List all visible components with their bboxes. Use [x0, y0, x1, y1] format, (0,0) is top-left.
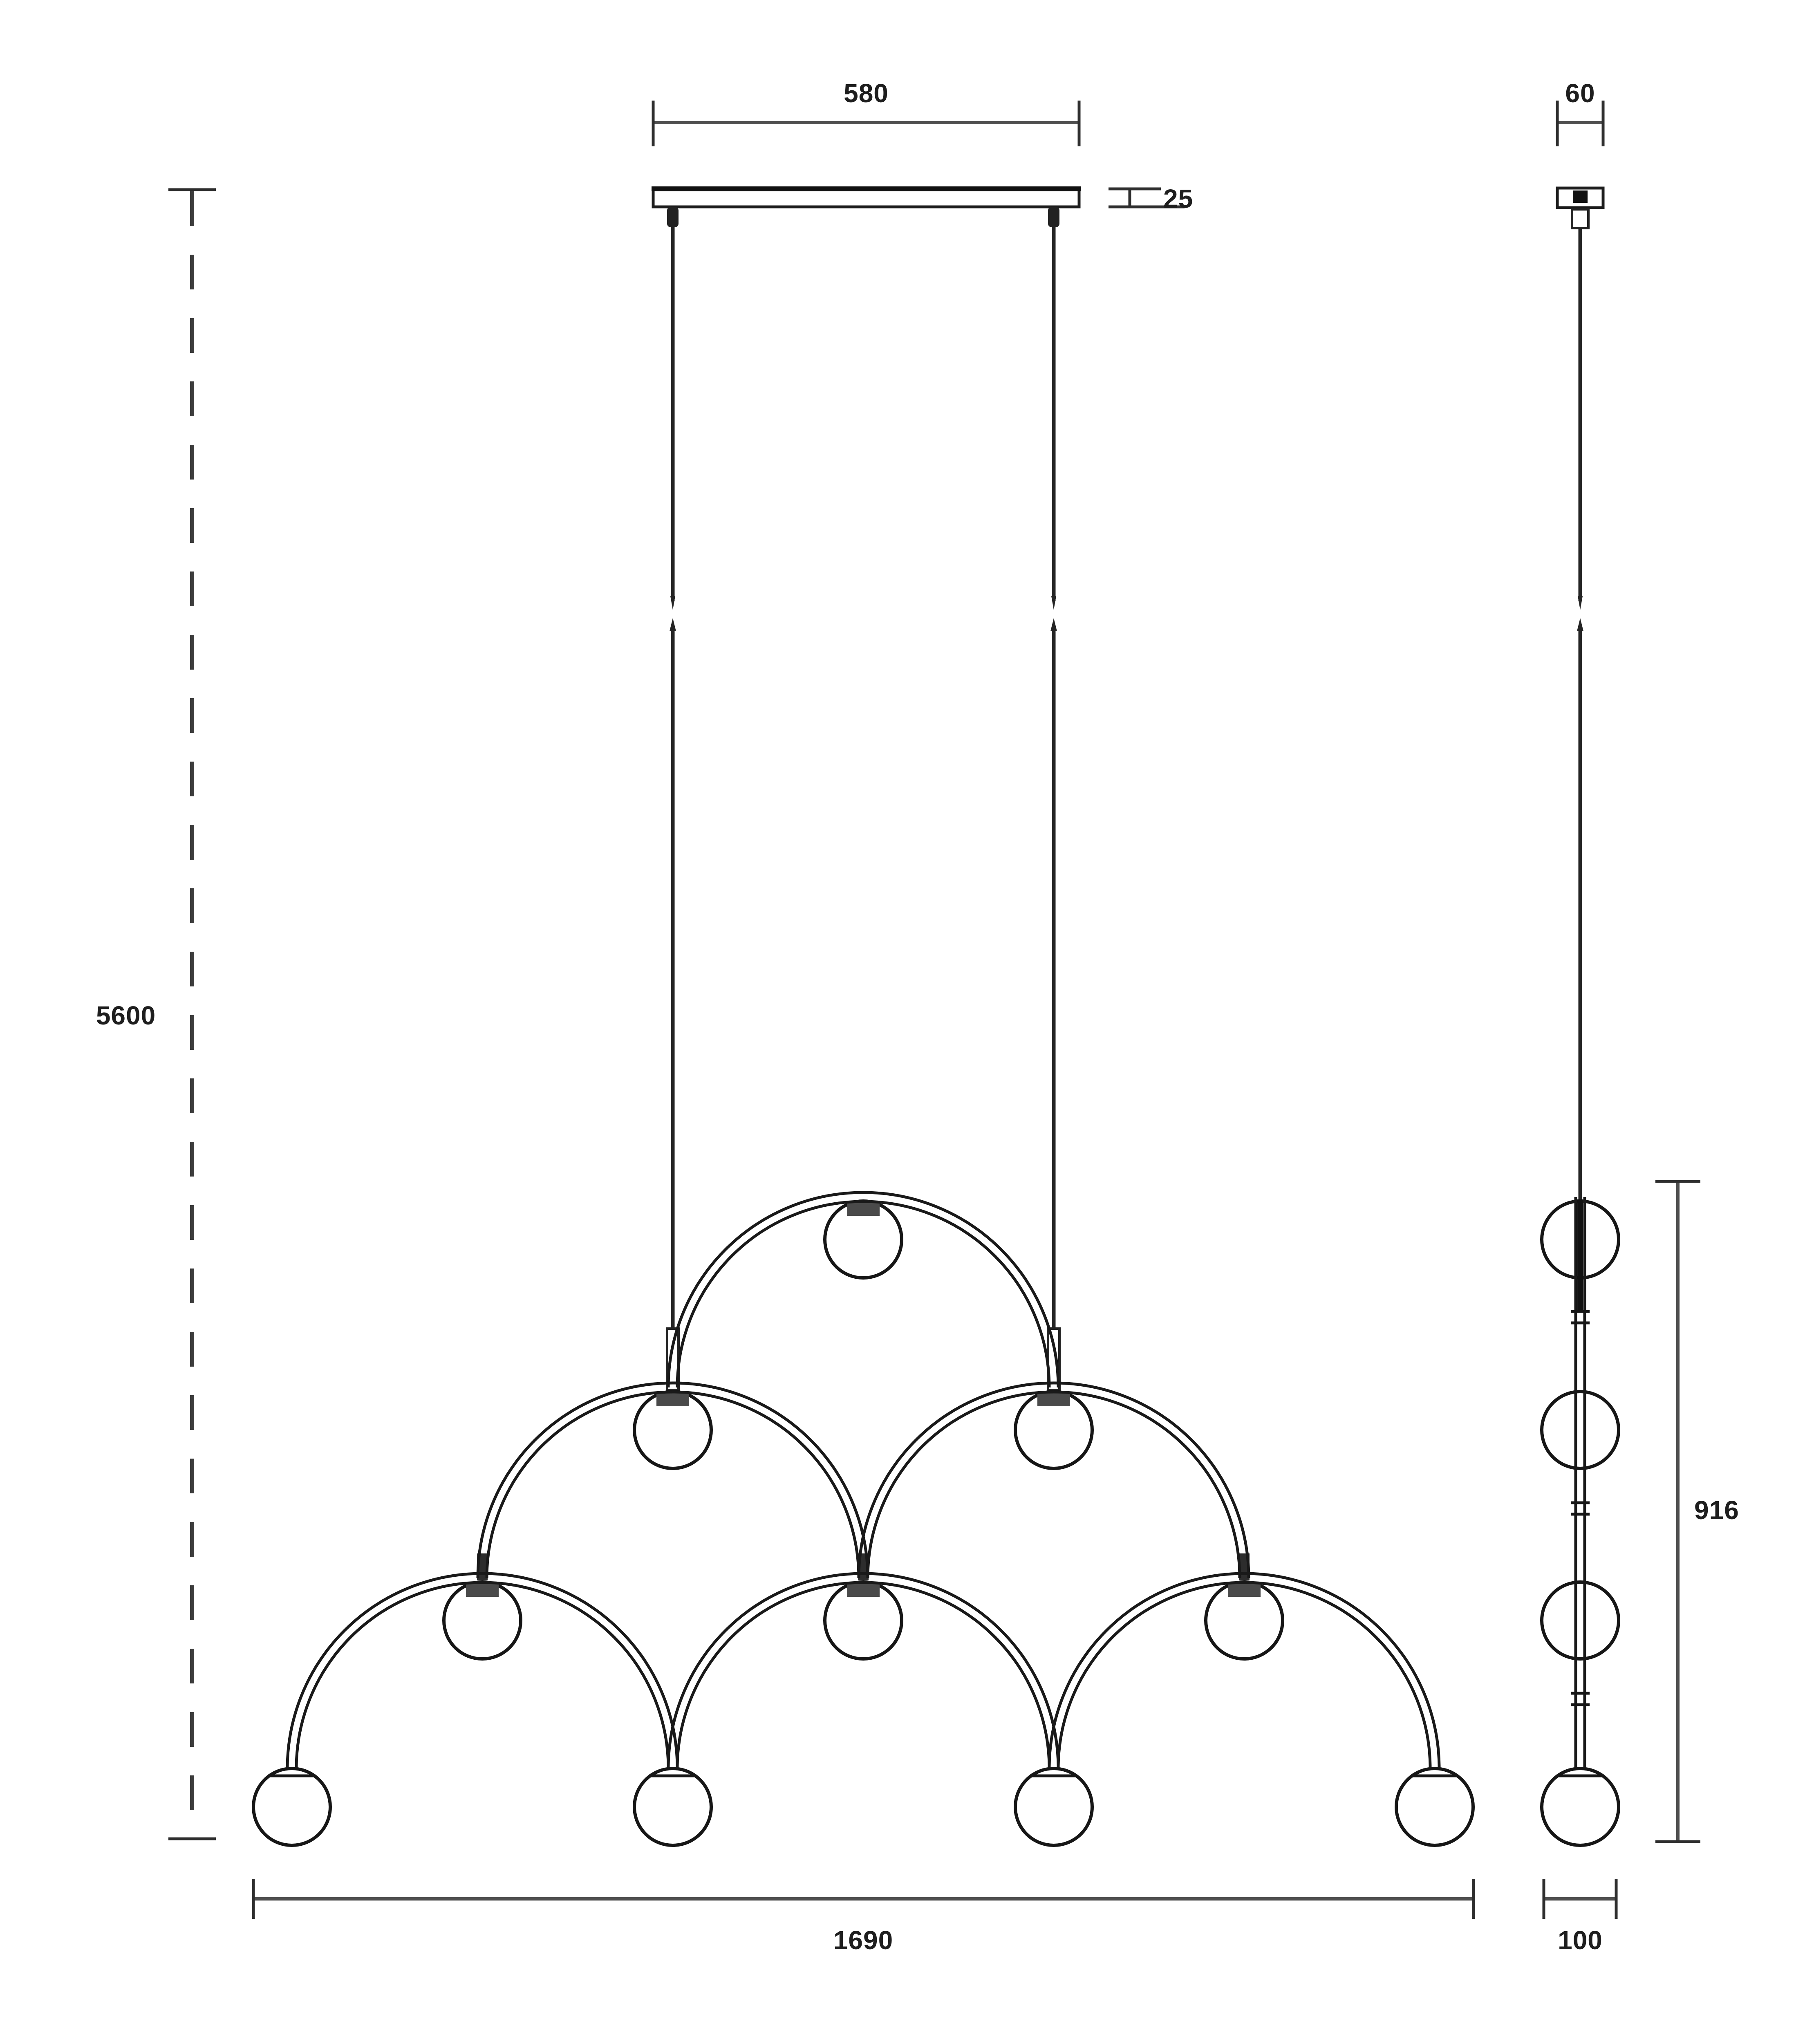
- dim-label-canopy-width: 580: [844, 78, 889, 108]
- sphere-mount: [1037, 1392, 1070, 1406]
- suspension-wire-right: [1048, 226, 1059, 1390]
- canopy-front: [652, 188, 1081, 227]
- suspension-wire-side: [1577, 228, 1583, 1202]
- dim-label-canopy-height: 25: [1163, 184, 1193, 213]
- sphere-mount: [847, 1582, 880, 1597]
- wire-break-mark: [1051, 596, 1056, 610]
- dim-label-fixture-depth: 100: [1558, 1925, 1603, 1955]
- glass-sphere: [1542, 1392, 1619, 1468]
- glass-sphere: [1542, 1582, 1619, 1659]
- dim-canopy-height: 25: [1109, 184, 1193, 213]
- wire-connector-nub: [1048, 207, 1059, 227]
- technical-drawing-page: 580 25 5600 1690: [0, 0, 1814, 2044]
- suspension-wire-left: [667, 226, 679, 1390]
- side-view: 60 916 100: [1542, 78, 1739, 1955]
- sphere-mount: [847, 1201, 880, 1216]
- tube-side: [1556, 1197, 1604, 1776]
- pendant-lamp-dimension-drawing: 580 25 5600 1690: [0, 0, 1814, 2044]
- arch-junctions: [477, 1553, 1250, 1580]
- wire-connector-nub: [667, 207, 679, 227]
- glass-sphere: [253, 1768, 330, 1845]
- front-view: 580 25 5600 1690: [96, 78, 1474, 1955]
- dim-label-fixture-height: 916: [1694, 1495, 1739, 1525]
- wire-break-mark: [1578, 596, 1583, 610]
- dim-fixture-depth: 100: [1544, 1879, 1616, 1955]
- sphere-mount: [656, 1392, 689, 1406]
- wire-break-mark: [670, 596, 675, 610]
- sphere-mount: [1228, 1582, 1261, 1597]
- glass-sphere: [634, 1768, 711, 1845]
- dim-fixture-height: 916: [1655, 1181, 1739, 1842]
- wire-connector-stem: [1572, 209, 1588, 228]
- canopy-side: [1557, 188, 1603, 228]
- glass-sphere: [1396, 1768, 1473, 1845]
- dim-max-suspension: 5600: [96, 190, 216, 1839]
- glass-sphere: [1015, 1768, 1092, 1845]
- sphere-mount: [466, 1582, 499, 1597]
- spheres-front: [253, 1201, 1473, 1845]
- dim-label-canopy-depth: 60: [1565, 78, 1595, 108]
- dim-canopy-width: 580: [653, 78, 1079, 146]
- canopy-screw: [1573, 191, 1588, 203]
- dim-canopy-depth: 60: [1557, 78, 1603, 146]
- dim-label-fixture-width: 1690: [833, 1925, 893, 1955]
- dim-label-max-suspension: 5600: [96, 1001, 156, 1030]
- glass-sphere: [1542, 1768, 1619, 1845]
- dim-fixture-width: 1690: [253, 1879, 1474, 1955]
